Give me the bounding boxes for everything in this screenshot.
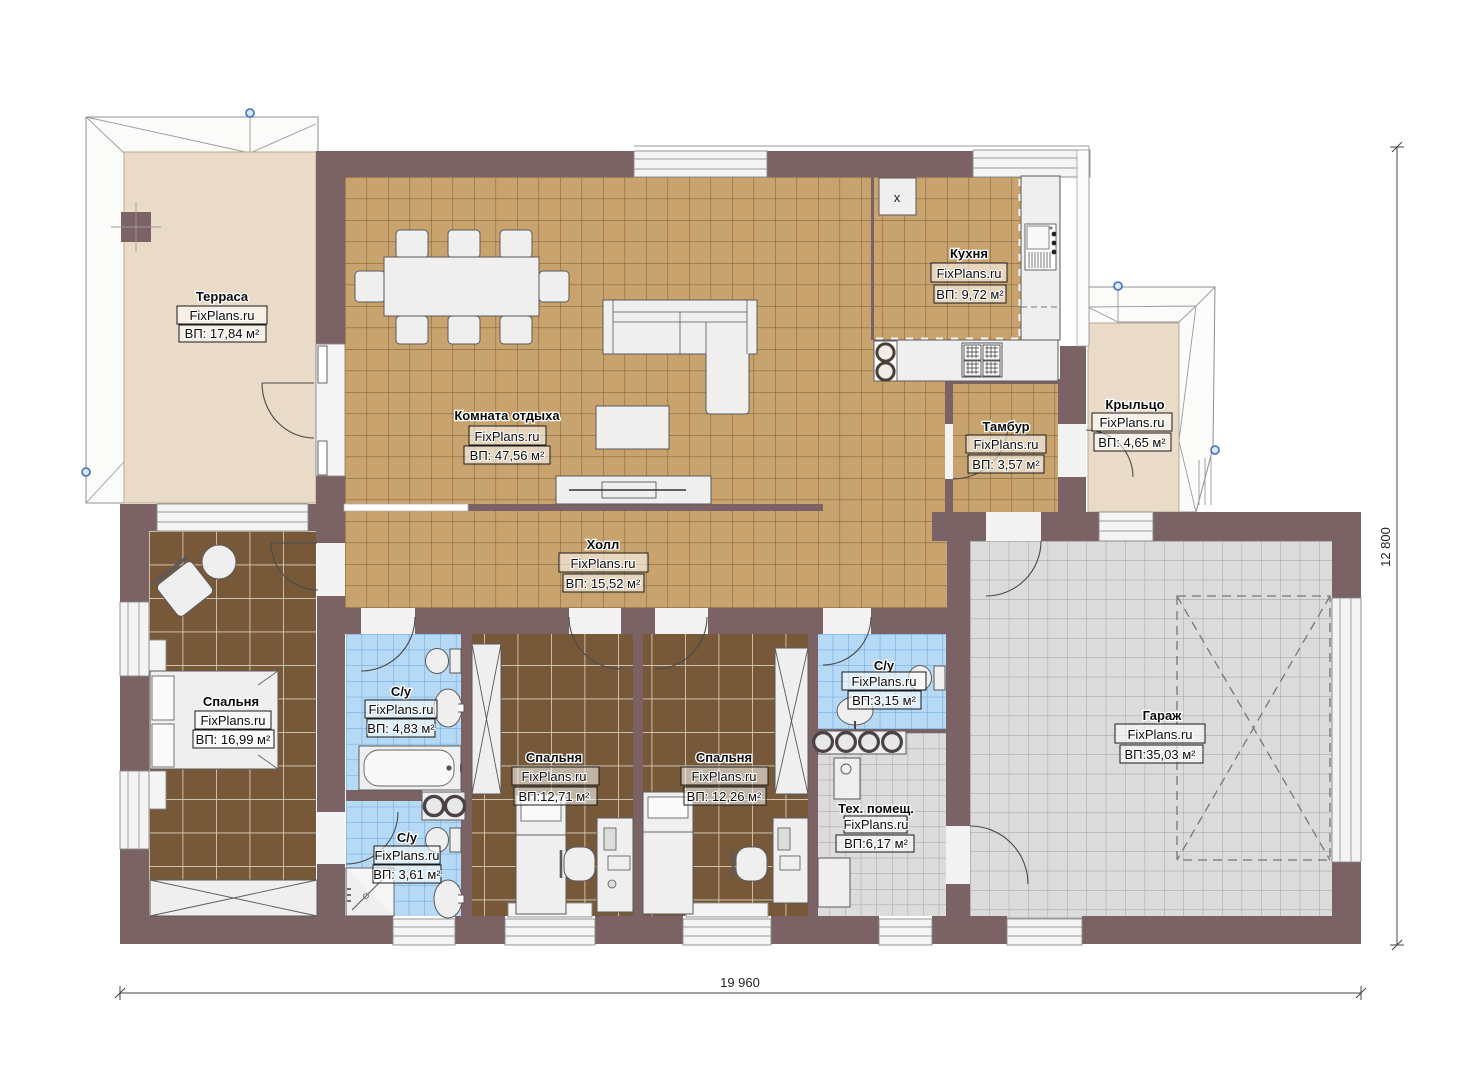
svg-text:Спальня: Спальня: [696, 750, 752, 765]
svg-text:x: x: [894, 190, 901, 205]
svg-text:ВП: 3,61 м²: ВП: 3,61 м²: [373, 867, 441, 882]
svg-text:ВП: 4,83 м²: ВП: 4,83 м²: [367, 721, 435, 736]
svg-text:Спальня: Спальня: [203, 694, 259, 709]
svg-text:ВП:12,71 м²: ВП:12,71 м²: [518, 789, 590, 804]
svg-text:FixPlans.ru: FixPlans.ru: [1127, 727, 1192, 742]
svg-text:ВП: 47,56 м²: ВП: 47,56 м²: [470, 448, 545, 463]
svg-text:ВП: 4,65 м²: ВП: 4,65 м²: [1098, 435, 1166, 450]
svg-text:FixPlans.ru: FixPlans.ru: [851, 674, 916, 689]
svg-text:FixPlans.ru: FixPlans.ru: [521, 769, 586, 784]
svg-text:FixPlans.ru: FixPlans.ru: [973, 437, 1038, 452]
svg-text:ВП: 9,72 м²: ВП: 9,72 м²: [936, 287, 1004, 302]
svg-text:FixPlans.ru: FixPlans.ru: [936, 266, 1001, 281]
svg-text:FixPlans.ru: FixPlans.ru: [691, 769, 756, 784]
svg-text:FixPlans.ru: FixPlans.ru: [189, 308, 254, 323]
svg-text:Комната отдыха: Комната отдыха: [454, 408, 560, 423]
svg-text:Гараж: Гараж: [1143, 708, 1183, 723]
svg-text:FixPlans.ru: FixPlans.ru: [843, 817, 908, 832]
svg-text:FixPlans.ru: FixPlans.ru: [200, 713, 265, 728]
svg-text:FixPlans.ru: FixPlans.ru: [474, 429, 539, 444]
svg-text:Тамбур: Тамбур: [982, 419, 1029, 434]
svg-text:FixPlans.ru: FixPlans.ru: [374, 848, 439, 863]
svg-text:С/у: С/у: [874, 658, 895, 673]
svg-text:Холл: Холл: [587, 537, 620, 552]
svg-text:Спальня: Спальня: [526, 750, 582, 765]
svg-text:Тех. помещ.: Тех. помещ.: [838, 801, 914, 816]
svg-text:ВП: 3,57 м²: ВП: 3,57 м²: [972, 457, 1040, 472]
svg-text:ВП: 16,99 м²: ВП: 16,99 м²: [196, 732, 271, 747]
svg-text:Кухня: Кухня: [950, 246, 988, 261]
svg-text:ВП:6,17 м²: ВП:6,17 м²: [844, 836, 908, 851]
svg-text:ВП: 12,26 м²: ВП: 12,26 м²: [687, 789, 762, 804]
svg-text:19 960: 19 960: [720, 975, 760, 990]
svg-text:ВП:35,03 м²: ВП:35,03 м²: [1124, 747, 1196, 762]
svg-text:FixPlans.ru: FixPlans.ru: [368, 702, 433, 717]
svg-text:Крыльцо: Крыльцо: [1105, 397, 1164, 412]
svg-text:ВП:3,15 м²: ВП:3,15 м²: [852, 693, 916, 708]
svg-text:ВП: 15,52 м²: ВП: 15,52 м²: [566, 576, 641, 591]
svg-text:С/у: С/у: [391, 684, 412, 699]
svg-text:FixPlans.ru: FixPlans.ru: [1099, 415, 1164, 430]
svg-text:Терраса: Терраса: [196, 289, 249, 304]
svg-text:12 800: 12 800: [1378, 527, 1393, 567]
svg-text:FixPlans.ru: FixPlans.ru: [570, 556, 635, 571]
svg-text:С/у: С/у: [397, 830, 418, 845]
svg-text:ВП: 17,84 м²: ВП: 17,84 м²: [185, 326, 260, 341]
